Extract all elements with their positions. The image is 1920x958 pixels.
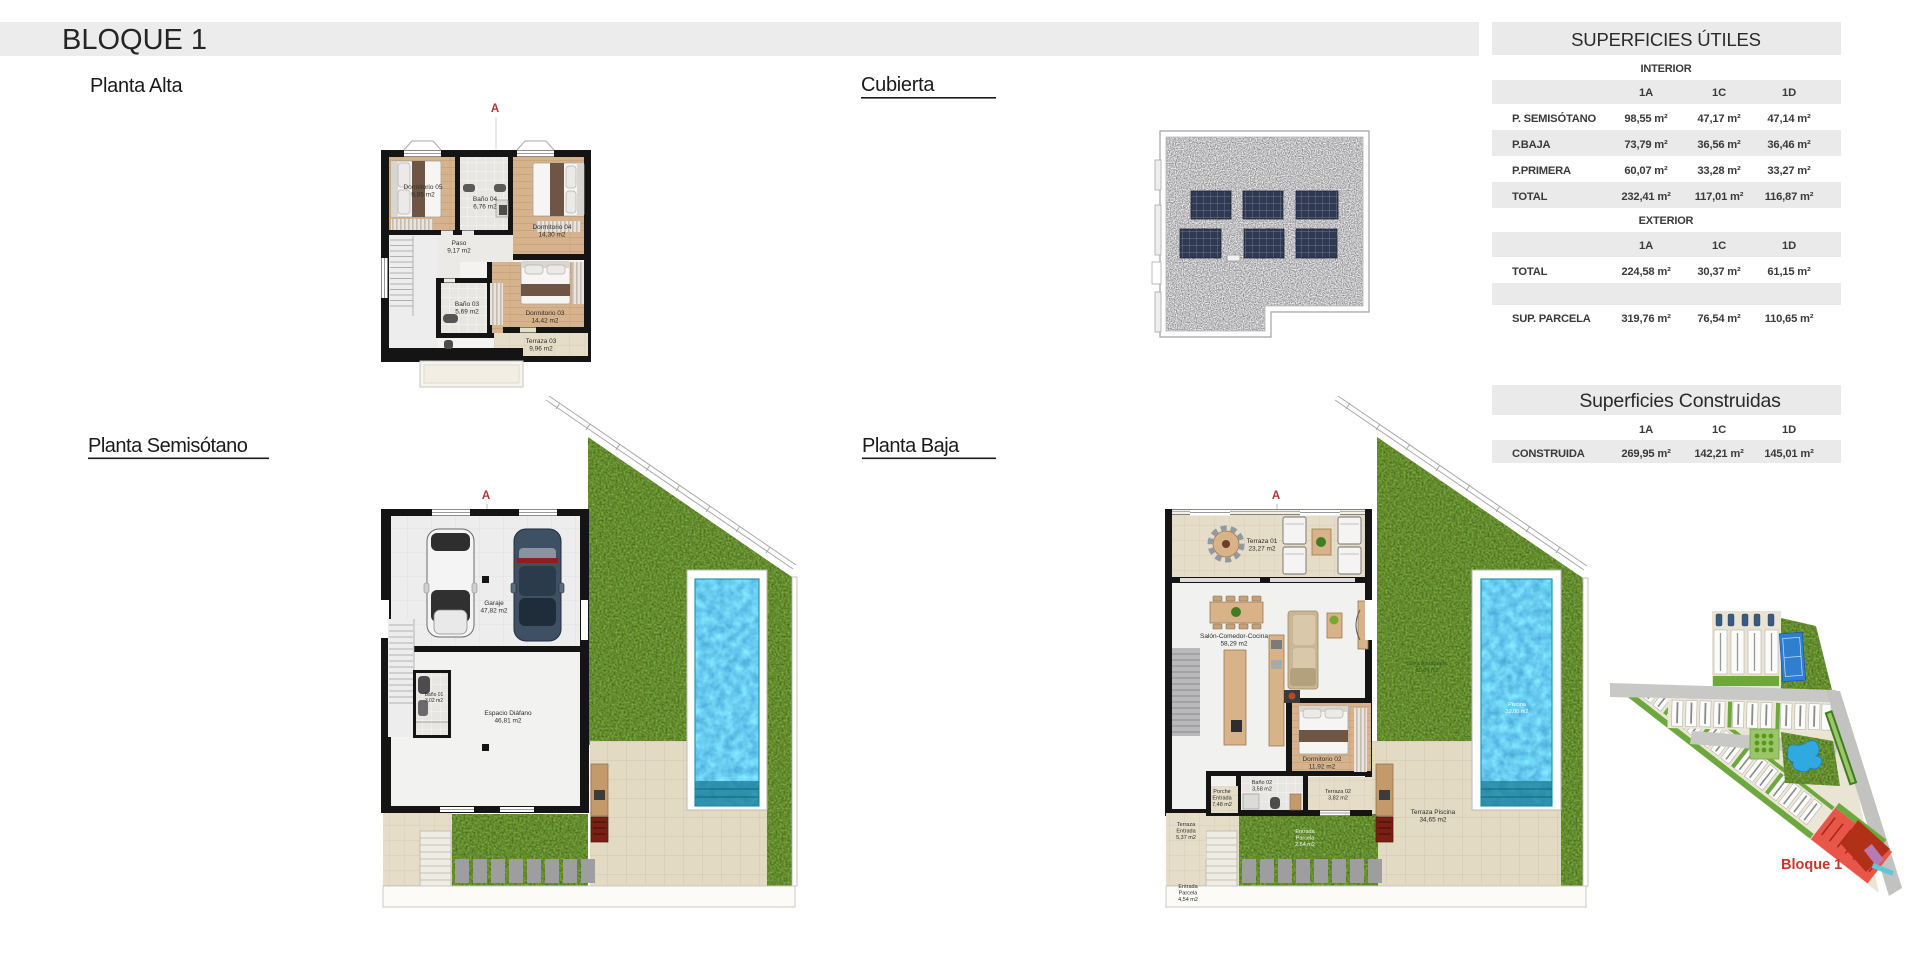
svg-text:Entrada: Entrada <box>1295 829 1315 835</box>
svg-text:Dormitorio 04: Dormitorio 04 <box>532 224 571 231</box>
svg-text:58,29 m2: 58,29 m2 <box>1220 641 1247 648</box>
svg-text:319,76 m²: 319,76 m² <box>1621 313 1671 325</box>
svg-text:Entrada: Entrada <box>1178 884 1198 890</box>
svg-text:36,46 m²: 36,46 m² <box>1767 139 1811 151</box>
svg-text:46,81 m2: 46,81 m2 <box>494 718 521 725</box>
svg-text:Cubierta: Cubierta <box>861 74 935 96</box>
svg-text:1A: 1A <box>1639 424 1653 436</box>
svg-text:5,69 m2: 5,69 m2 <box>455 309 479 316</box>
svg-text:73,79 m²: 73,79 m² <box>1624 139 1668 151</box>
svg-text:TOTAL: TOTAL <box>1512 191 1548 203</box>
svg-text:Piscina: Piscina <box>1508 702 1527 708</box>
svg-text:1D: 1D <box>1782 424 1796 436</box>
svg-text:80,04 m2: 80,04 m2 <box>1416 668 1439 674</box>
svg-text:110,65 m²: 110,65 m² <box>1765 313 1814 325</box>
svg-text:1C: 1C <box>1712 240 1726 252</box>
svg-text:117,01 m²: 117,01 m² <box>1695 191 1744 203</box>
svg-text:3,02 m2: 3,02 m2 <box>425 698 443 704</box>
svg-text:BLOQUE 1: BLOQUE 1 <box>62 24 207 56</box>
svg-text:EXTERIOR: EXTERIOR <box>1639 215 1694 227</box>
svg-text:9,17 m2: 9,17 m2 <box>447 248 471 255</box>
svg-text:Planta Baja: Planta Baja <box>862 435 960 457</box>
svg-text:76,54 m²: 76,54 m² <box>1697 313 1741 325</box>
svg-text:Zona Ajardinada: Zona Ajardinada <box>1407 661 1448 667</box>
svg-text:34,65 m2: 34,65 m2 <box>1419 817 1446 824</box>
svg-text:SUP. PARCELA: SUP. PARCELA <box>1512 313 1591 325</box>
svg-text:P. SEMISÓTANO: P. SEMISÓTANO <box>1512 112 1597 125</box>
svg-text:Dormitorio 03: Dormitorio 03 <box>525 310 564 317</box>
svg-text:9,96 m2: 9,96 m2 <box>529 346 553 353</box>
svg-text:Parcela: Parcela <box>1179 891 1199 897</box>
svg-text:1D: 1D <box>1782 240 1796 252</box>
svg-text:Planta Semisótano: Planta Semisótano <box>88 435 248 457</box>
svg-text:Porche: Porche <box>1213 789 1230 795</box>
svg-text:3,82 m2: 3,82 m2 <box>1328 796 1348 802</box>
svg-text:A: A <box>491 103 499 115</box>
svg-text:33,27 m²: 33,27 m² <box>1767 165 1811 177</box>
svg-text:Baño 03: Baño 03 <box>455 301 480 308</box>
svg-text:1C: 1C <box>1712 424 1726 436</box>
svg-text:36,56 m²: 36,56 m² <box>1697 139 1741 151</box>
svg-text:232,41 m²: 232,41 m² <box>1621 191 1671 203</box>
svg-text:2,64 m2: 2,64 m2 <box>1295 842 1315 848</box>
svg-text:Terraza 01: Terraza 01 <box>1247 538 1278 545</box>
svg-text:P.BAJA: P.BAJA <box>1512 139 1551 151</box>
svg-text:P.PRIMERA: P.PRIMERA <box>1512 165 1571 177</box>
svg-text:1C: 1C <box>1712 87 1726 99</box>
svg-text:Espacio Diáfano: Espacio Diáfano <box>484 710 532 717</box>
svg-text:60,07 m²: 60,07 m² <box>1624 165 1668 177</box>
svg-text:Baño 04: Baño 04 <box>473 196 498 203</box>
svg-text:98,55 m²: 98,55 m² <box>1624 113 1668 125</box>
svg-text:14,42 m2: 14,42 m2 <box>531 318 558 325</box>
svg-text:Bloque 1: Bloque 1 <box>1781 857 1842 873</box>
svg-text:6,76 m2: 6,76 m2 <box>473 204 497 211</box>
svg-text:1A: 1A <box>1639 240 1653 252</box>
svg-text:Planta Alta: Planta Alta <box>90 75 184 97</box>
svg-text:TOTAL: TOTAL <box>1512 266 1548 278</box>
svg-text:CONSTRUIDA: CONSTRUIDA <box>1512 448 1585 460</box>
svg-text:Terraza: Terraza <box>1177 822 1196 828</box>
svg-text:Terraza 03: Terraza 03 <box>526 338 557 345</box>
svg-text:A: A <box>482 490 490 502</box>
svg-text:1D: 1D <box>1782 87 1796 99</box>
svg-text:116,87 m²: 116,87 m² <box>1765 191 1814 203</box>
svg-text:61,15 m²: 61,15 m² <box>1767 266 1811 278</box>
svg-text:Baño 02: Baño 02 <box>1252 780 1273 786</box>
svg-text:30,37 m²: 30,37 m² <box>1697 266 1741 278</box>
svg-text:47,82 m2: 47,82 m2 <box>480 608 507 615</box>
svg-text:Garaje: Garaje <box>484 600 504 607</box>
svg-text:23,27 m2: 23,27 m2 <box>1248 546 1275 553</box>
svg-text:Entrada: Entrada <box>1176 829 1196 835</box>
svg-text:Dormitorio 02: Dormitorio 02 <box>1302 756 1341 763</box>
svg-text:4,54 m2: 4,54 m2 <box>1178 897 1198 903</box>
svg-text:224,58 m²: 224,58 m² <box>1621 266 1671 278</box>
svg-text:142,21 m²: 142,21 m² <box>1694 448 1744 460</box>
svg-text:3,58 m2: 3,58 m2 <box>1252 787 1272 793</box>
svg-text:SUPERFICIES ÚTILES: SUPERFICIES ÚTILES <box>1571 29 1761 50</box>
svg-text:A: A <box>1272 490 1280 502</box>
svg-text:Parcela: Parcela <box>1296 836 1316 842</box>
svg-text:Superficies Construidas: Superficies Construidas <box>1579 390 1781 412</box>
svg-text:5,37 m2: 5,37 m2 <box>1176 835 1196 841</box>
svg-text:Salón-Comedor-Cocina: Salón-Comedor-Cocina <box>1200 633 1268 640</box>
svg-text:269,95 m²: 269,95 m² <box>1621 448 1671 460</box>
svg-text:Terraza Piscina: Terraza Piscina <box>1411 809 1456 816</box>
svg-text:32,00 m2: 32,00 m2 <box>1506 709 1529 715</box>
svg-text:33,28 m²: 33,28 m² <box>1697 165 1741 177</box>
svg-text:Entrada: Entrada <box>1212 796 1232 802</box>
svg-text:11,92 m2: 11,92 m2 <box>1309 764 1336 771</box>
svg-text:9,85 m2: 9,85 m2 <box>411 192 435 199</box>
svg-text:47,14 m²: 47,14 m² <box>1767 113 1811 125</box>
svg-text:145,01 m²: 145,01 m² <box>1764 448 1814 460</box>
svg-text:1A: 1A <box>1639 87 1653 99</box>
svg-text:7,48 m2: 7,48 m2 <box>1212 802 1232 808</box>
svg-text:14,30 m2: 14,30 m2 <box>538 232 565 239</box>
svg-text:INTERIOR: INTERIOR <box>1641 63 1692 75</box>
svg-text:Terraza 02: Terraza 02 <box>1325 789 1351 795</box>
svg-text:Paso: Paso <box>452 240 467 247</box>
svg-text:Dormitorio 05: Dormitorio 05 <box>403 184 442 191</box>
svg-text:47,17 m²: 47,17 m² <box>1697 113 1741 125</box>
